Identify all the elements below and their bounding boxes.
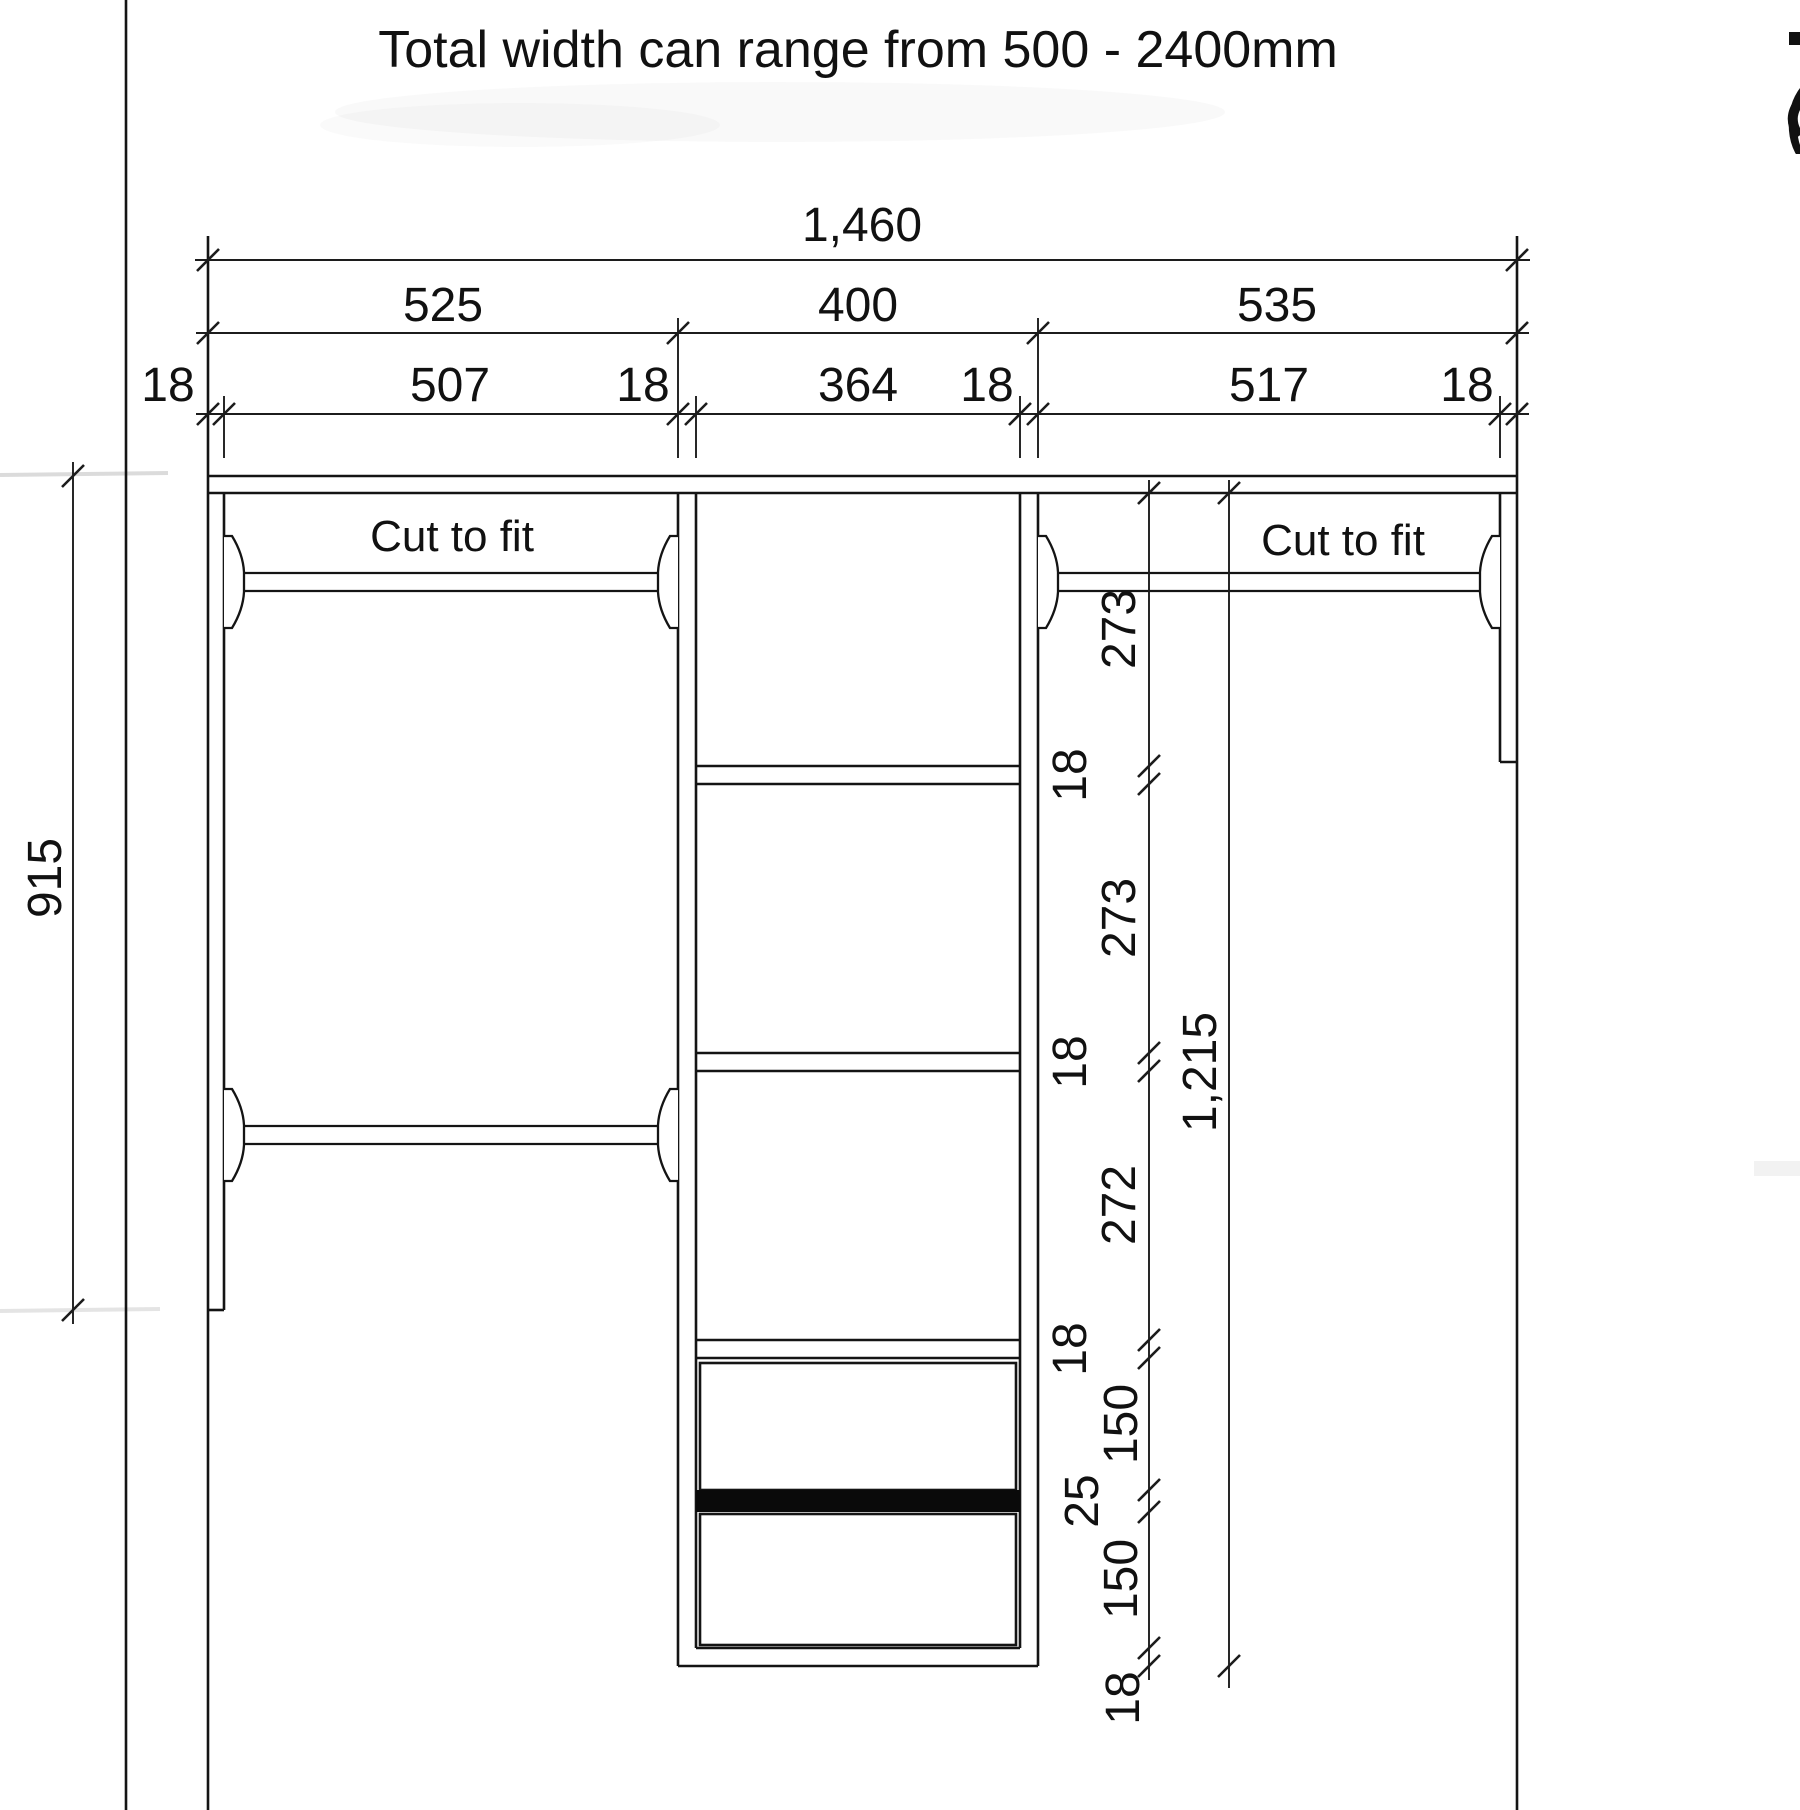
- dim-detail-5: 517: [1229, 362, 1309, 410]
- tower-right-panel: [1020, 493, 1038, 1666]
- dim-chain-3: 18: [1047, 1035, 1095, 1088]
- drawer-gap-band: [696, 1490, 1020, 1512]
- tower-left-panel: [678, 493, 696, 1666]
- dim-chain-5: 18: [1047, 1322, 1095, 1375]
- tower-shelf-3: [696, 1340, 1020, 1358]
- hanging-rails: [224, 536, 1500, 1181]
- dim-detail-4: 18: [960, 362, 1013, 410]
- wardrobe-elevation-drawing: Total width can range from 500 - 2400mm …: [0, 0, 1800, 1810]
- rail-bracket-icon: [224, 536, 244, 628]
- dim-section-right: 535: [1237, 282, 1317, 330]
- rail-bracket-icon: [1480, 536, 1500, 628]
- cut-to-fit-label-right: Cut to fit: [1261, 519, 1425, 563]
- dim-chain-2: 273: [1096, 878, 1144, 958]
- dim-chain-7: 25: [1059, 1474, 1107, 1527]
- dim-chain-4: 272: [1096, 1165, 1144, 1245]
- dim-chain-8: 150: [1098, 1539, 1146, 1619]
- dim-total-width: 1,460: [802, 202, 922, 250]
- dim-chain-1: 18: [1047, 748, 1095, 801]
- dim-detail-3: 364: [818, 362, 898, 410]
- dim-detail-0: 18: [141, 362, 194, 410]
- tower-shelf-1: [696, 766, 1020, 784]
- drawer-front-lower: [700, 1514, 1016, 1645]
- tower-shelf-2: [696, 1053, 1020, 1071]
- right-side-panel: [1500, 493, 1517, 762]
- dimension-lines: [73, 260, 1530, 1688]
- drawing-canvas: [0, 0, 1800, 1810]
- dim-vertical-total: 1,215: [1177, 1012, 1225, 1132]
- dim-left-height: 915: [22, 838, 70, 918]
- dim-detail-6: 18: [1440, 362, 1493, 410]
- dimension-ticks: [62, 249, 1528, 1677]
- rail-bracket-icon: [658, 1089, 678, 1181]
- boundary-lines: [126, 0, 1517, 1810]
- top-panel: [208, 476, 1517, 493]
- dim-detail-2: 18: [616, 362, 669, 410]
- edge-fragment-paren: (: [1779, 84, 1800, 154]
- drawing-title: Total width can range from 500 - 2400mm: [378, 24, 1338, 76]
- cabinet-structure: [208, 476, 1517, 1666]
- rail-bracket-icon: [1038, 536, 1058, 628]
- dim-chain-6: 150: [1098, 1384, 1146, 1464]
- tower-bottom-panel: [678, 1648, 1038, 1666]
- dim-section-left: 525: [403, 282, 483, 330]
- drawer-front-upper: [700, 1363, 1016, 1490]
- rail-lower-left: [224, 1089, 678, 1181]
- cut-to-fit-label-left: Cut to fit: [370, 515, 534, 559]
- dim-detail-1: 507: [410, 362, 490, 410]
- dim-section-middle: 400: [818, 282, 898, 330]
- dim-chain-9: 18: [1100, 1671, 1148, 1724]
- left-side-panel: [208, 493, 224, 1310]
- rail-bracket-icon: [658, 536, 678, 628]
- dim-chain-0: 273: [1096, 589, 1144, 669]
- rail-bracket-icon: [224, 1089, 244, 1181]
- edge-fragment-bar: [1789, 32, 1800, 45]
